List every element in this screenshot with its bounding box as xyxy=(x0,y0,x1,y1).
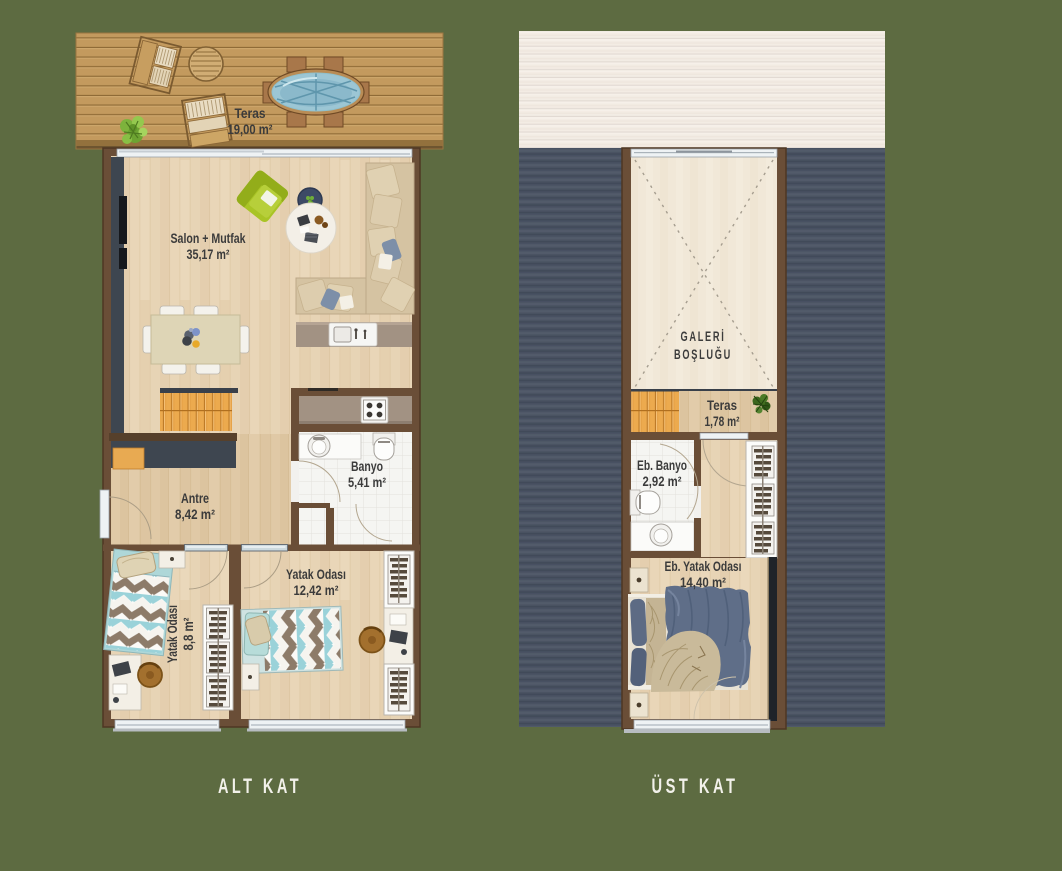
svg-text:19,00 m²: 19,00 m² xyxy=(228,122,273,137)
svg-text:14,40 m²: 14,40 m² xyxy=(680,575,726,590)
svg-text:ALT KAT: ALT KAT xyxy=(218,775,302,798)
svg-text:ÜST KAT: ÜST KAT xyxy=(652,775,739,798)
svg-text:Eb. Yatak Odası: Eb. Yatak Odası xyxy=(665,559,742,574)
svg-text:Banyo: Banyo xyxy=(351,459,383,474)
svg-text:Teras: Teras xyxy=(707,398,737,413)
svg-text:2,92 m²: 2,92 m² xyxy=(643,474,682,489)
svg-text:1,78 m²: 1,78 m² xyxy=(705,414,740,429)
svg-text:5,41 m²: 5,41 m² xyxy=(348,475,386,490)
svg-text:12,42 m²: 12,42 m² xyxy=(294,583,339,598)
svg-text:Yatak Odası: Yatak Odası xyxy=(286,567,346,582)
svg-text:8,42 m²: 8,42 m² xyxy=(175,507,215,522)
svg-text:Yatak Odası: Yatak Odası xyxy=(165,605,180,663)
svg-text:Teras: Teras xyxy=(235,106,266,121)
svg-text:8,8 m²: 8,8 m² xyxy=(181,617,196,650)
svg-text:BOŞLUĞU: BOŞLUĞU xyxy=(674,347,732,362)
svg-text:Salon + Mutfak: Salon + Mutfak xyxy=(171,231,246,246)
svg-text:Eb. Banyo: Eb. Banyo xyxy=(637,458,687,473)
svg-text:Antre: Antre xyxy=(181,491,209,506)
svg-text:35,17 m²: 35,17 m² xyxy=(187,247,230,262)
svg-text:GALERİ: GALERİ xyxy=(681,329,726,344)
